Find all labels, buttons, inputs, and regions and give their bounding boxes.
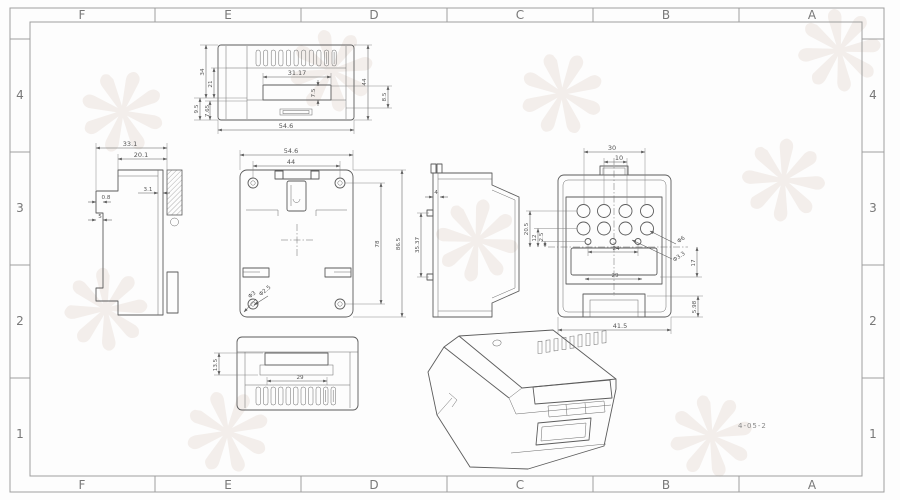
dim-label: 31.17 xyxy=(288,69,307,77)
dim-label: Φ3 xyxy=(247,290,257,300)
dim-label: 8.5 xyxy=(382,92,388,101)
dim-label: 78 xyxy=(375,240,381,248)
watermark-flower-icon: ❋ xyxy=(785,0,894,122)
zone-number: 4 xyxy=(16,88,24,102)
zone-letter: D xyxy=(369,478,378,492)
dim-label: Φ3.3 xyxy=(672,251,687,264)
front-view-dimensions: 30 10 20.5 12 2.5 24 29 41.5 5.98 xyxy=(524,144,703,334)
zone-letter: A xyxy=(808,8,817,22)
dim-label: 44 xyxy=(287,158,295,166)
watermark-flower-icon: ❋ xyxy=(58,39,185,189)
vent-slots xyxy=(256,387,336,405)
dim-label: 54.6 xyxy=(279,122,293,130)
dim-label: 54.6 xyxy=(284,147,298,155)
dim-label: 7.5 xyxy=(311,88,317,97)
dim-label: 2.5 xyxy=(539,232,545,241)
dim-label: 17 xyxy=(691,259,697,267)
zone-letter: C xyxy=(516,478,524,492)
zone-number: 3 xyxy=(16,201,24,215)
dim-label: 33.1 xyxy=(123,140,137,148)
dim-label: 7.65 xyxy=(205,104,211,117)
zone-number: 1 xyxy=(869,427,877,441)
dim-label: 35.37 xyxy=(415,237,421,253)
zone-letter: D xyxy=(369,8,378,22)
isometric-view xyxy=(428,330,616,469)
dim-label: 10 xyxy=(615,154,623,162)
dim-label: 34 xyxy=(200,68,206,76)
zone-letter: F xyxy=(79,8,86,22)
zone-number: 2 xyxy=(869,314,877,328)
dim-label: Φ6 xyxy=(676,235,686,245)
zone-number: 1 xyxy=(16,427,24,441)
dim-label: 12 xyxy=(532,234,538,241)
zone-letter: E xyxy=(224,8,232,22)
zone-number: 2 xyxy=(16,314,24,328)
drawing-sheet: ❋ ❋ ❋ ❋ ❋ ❋ ❋ ❋ ❋ F E D C B xyxy=(0,0,900,500)
dim-label: 24 xyxy=(612,246,620,252)
zone-letter: B xyxy=(662,8,670,22)
zone-number: 4 xyxy=(869,88,877,102)
dim-label: 20.1 xyxy=(134,151,148,159)
dim-label: 29 xyxy=(611,273,619,279)
rear-view: 54.6 44 78 86.5 Φ3 Φ2.5 xyxy=(240,147,406,317)
dim-label: 41.5 xyxy=(613,322,627,330)
dim-label: Φ2.5 xyxy=(258,284,272,297)
dim-label: 5.98 xyxy=(692,300,698,313)
dim-label: 5 xyxy=(98,214,102,220)
dim-label: 13.5 xyxy=(213,358,219,371)
dim-label: 21 xyxy=(208,80,214,88)
zone-number: 3 xyxy=(869,201,877,215)
watermark-flower-icon: ❋ xyxy=(732,114,835,250)
terminal-holes xyxy=(577,205,654,245)
dim-label: 29 xyxy=(296,375,304,381)
zone-letter: E xyxy=(224,478,232,492)
dim-label: 44 xyxy=(362,78,368,86)
dim-label: 0.8 xyxy=(102,195,111,201)
dim-label: 3.1 xyxy=(144,187,153,193)
zone-letter: C xyxy=(516,8,524,22)
drawing-canvas: ❋ ❋ ❋ ❋ ❋ ❋ ❋ ❋ ❋ F E D C B xyxy=(0,0,900,500)
dim-label: 9.5 xyxy=(194,104,200,113)
drawing-number: 4-05-2 xyxy=(738,422,767,430)
iso-vent-strip xyxy=(533,331,612,404)
dim-label: 86.5 xyxy=(396,237,402,250)
front-view: 30 10 20.5 12 2.5 24 29 41.5 5.98 xyxy=(524,144,703,334)
zone-letter: F xyxy=(79,478,86,492)
zone-letter: B xyxy=(662,478,670,492)
iso-recess-grid xyxy=(548,401,605,417)
dim-label: 30 xyxy=(608,144,616,152)
center-mark xyxy=(281,224,313,256)
din-latch xyxy=(275,170,319,211)
zone-letter: A xyxy=(808,478,817,492)
rear-view-dimensions: 54.6 44 78 86.5 Φ3 Φ2.5 xyxy=(240,147,406,317)
dim-label: 4 xyxy=(434,190,438,196)
iso-front-window xyxy=(511,405,611,453)
cable-tabs xyxy=(243,268,351,277)
dim-label: 20.5 xyxy=(524,222,530,235)
